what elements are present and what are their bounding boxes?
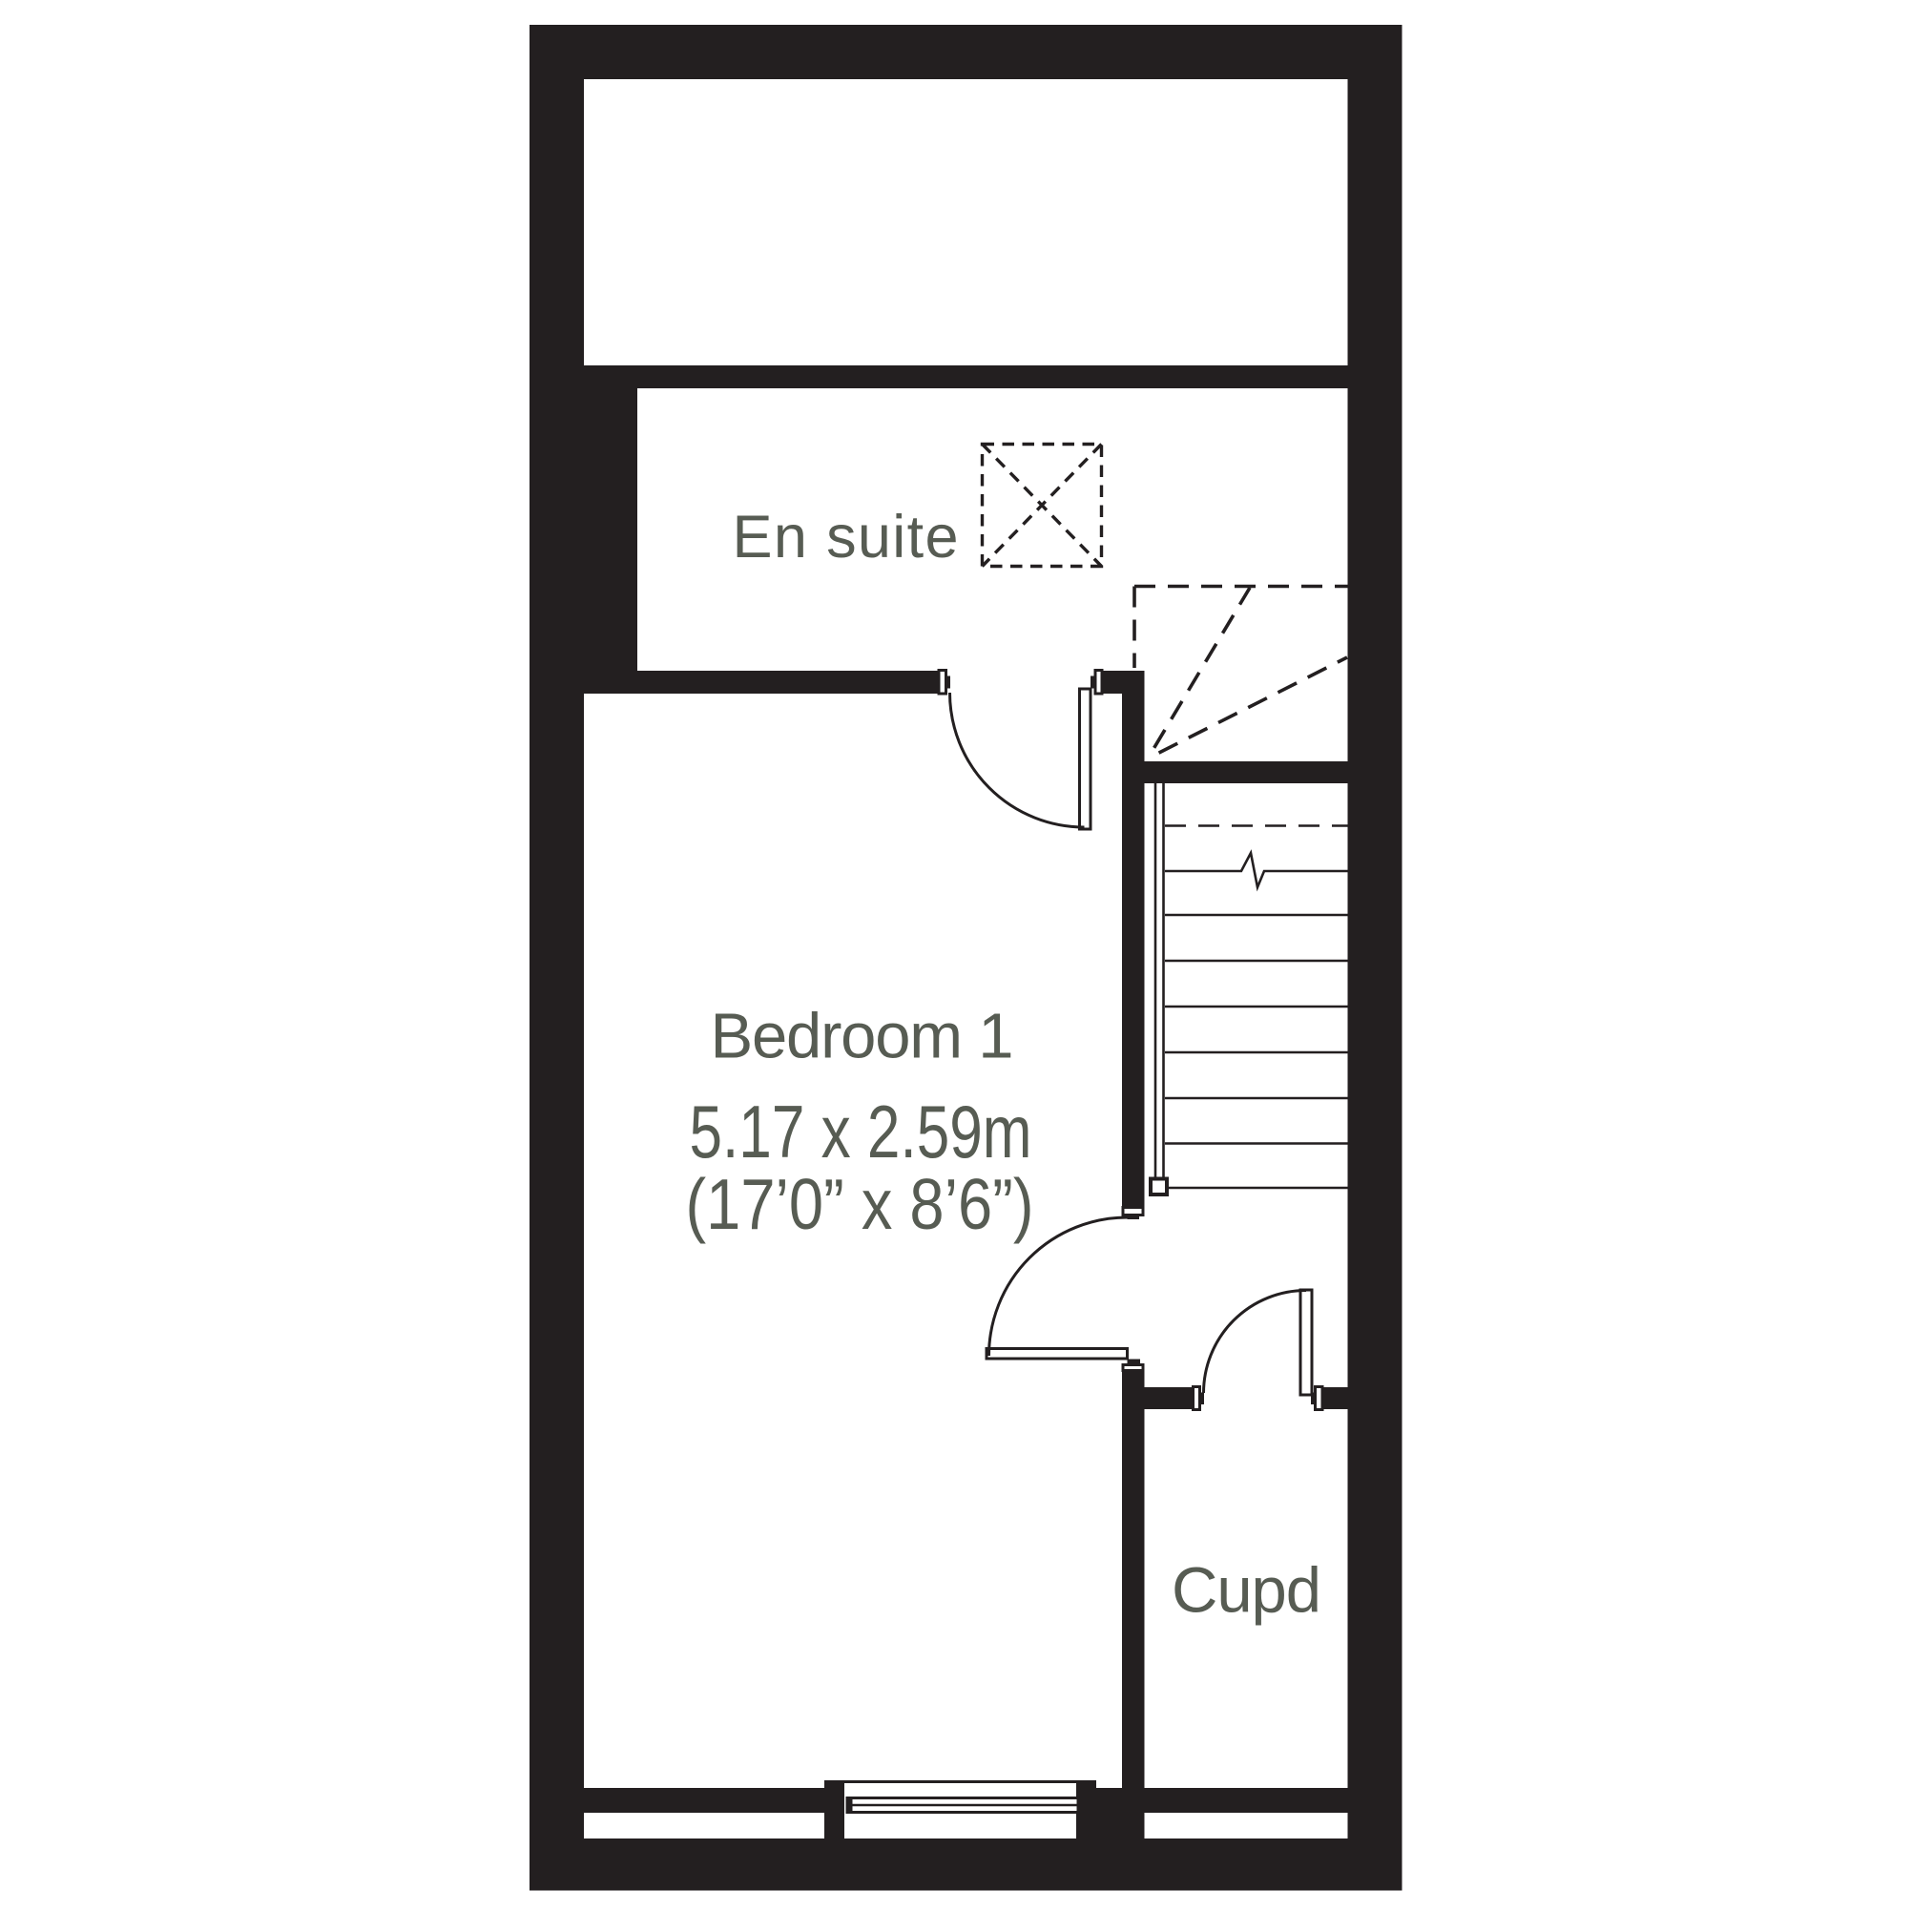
svg-text:(17’0” x 8’6”): (17’0” x 8’6”)	[686, 1164, 1034, 1244]
svg-text:Bedroom 1: Bedroom 1	[711, 1001, 1014, 1072]
svg-text:5.17 x 2.59m: 5.17 x 2.59m	[690, 1090, 1032, 1174]
svg-text:Cupd: Cupd	[1172, 1555, 1321, 1627]
svg-text:En suite: En suite	[733, 504, 959, 571]
